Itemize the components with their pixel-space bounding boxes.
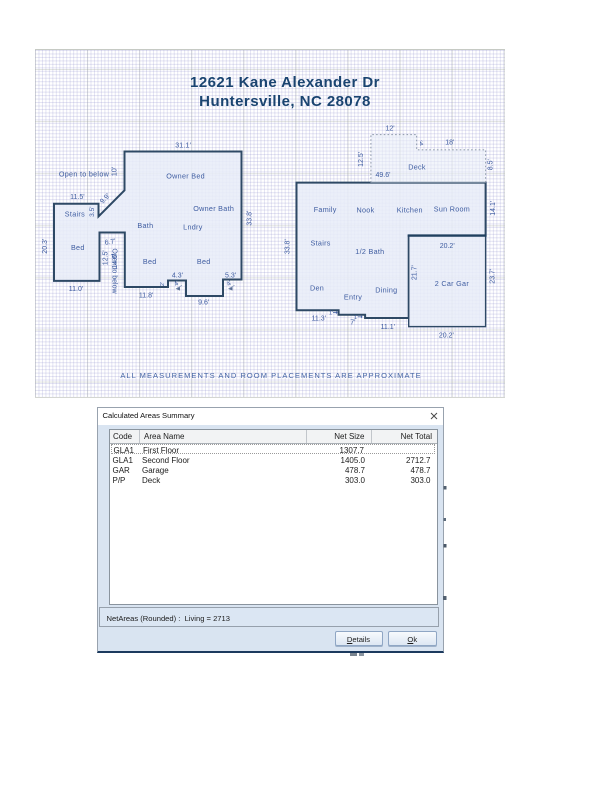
svg-text:49.6': 49.6' bbox=[376, 172, 391, 179]
svg-text:33.8': 33.8' bbox=[285, 239, 292, 254]
svg-text:Owner Bed: Owner Bed bbox=[166, 172, 205, 181]
svg-text:11.5': 11.5' bbox=[70, 194, 84, 201]
svg-text:14.5': 14.5' bbox=[112, 254, 119, 269]
svg-text:33.8': 33.8' bbox=[247, 211, 254, 226]
svg-text:20.3': 20.3' bbox=[42, 239, 49, 254]
svg-text:20.2': 20.2' bbox=[440, 243, 455, 250]
svg-text:11.8': 11.8' bbox=[139, 292, 153, 299]
svg-text:31.1': 31.1' bbox=[175, 143, 191, 150]
svg-text:Den: Den bbox=[310, 284, 324, 293]
svg-text:Stairs: Stairs bbox=[65, 209, 85, 218]
svg-text:Owner Bath: Owner Bath bbox=[193, 204, 234, 213]
svg-text:5.3': 5.3' bbox=[225, 273, 236, 280]
svg-text:11.0': 11.0' bbox=[69, 286, 83, 293]
svg-text:4.3': 4.3' bbox=[172, 273, 183, 280]
svg-text:20.2': 20.2' bbox=[439, 333, 454, 340]
svg-text:2 Car Gar: 2 Car Gar bbox=[435, 279, 470, 288]
svg-text:4': 4' bbox=[418, 140, 426, 148]
svg-text:11.3': 11.3' bbox=[312, 315, 326, 322]
svg-text:Bed: Bed bbox=[71, 243, 85, 252]
svg-text:12.5': 12.5' bbox=[358, 152, 365, 167]
svg-text:Bed: Bed bbox=[197, 257, 211, 266]
svg-text:Entry: Entry bbox=[344, 293, 362, 302]
svg-text:14.1': 14.1' bbox=[490, 201, 497, 216]
svg-text:Family: Family bbox=[314, 205, 337, 214]
svg-text:8.5': 8.5' bbox=[487, 159, 494, 170]
svg-text:3.5': 3.5' bbox=[89, 207, 96, 217]
svg-text:11.1': 11.1' bbox=[381, 324, 395, 331]
svg-text:1': 1' bbox=[354, 315, 358, 321]
svg-text:Bath: Bath bbox=[137, 221, 153, 230]
svg-text:Kitchen: Kitchen bbox=[397, 206, 423, 215]
svg-text:Nook: Nook bbox=[357, 206, 375, 215]
svg-text:Deck: Deck bbox=[408, 162, 426, 171]
svg-text:12': 12' bbox=[385, 126, 394, 133]
svg-text:21.7': 21.7' bbox=[412, 265, 419, 280]
svg-text:1/2 Bath: 1/2 Bath bbox=[355, 247, 384, 256]
svg-text:Stairs: Stairs bbox=[311, 238, 331, 247]
svg-text:Dining: Dining bbox=[375, 285, 397, 294]
svg-text:2': 2' bbox=[160, 282, 166, 286]
svg-text:Lndry: Lndry bbox=[183, 223, 203, 232]
svg-text:Sun Room: Sun Room bbox=[434, 205, 470, 214]
svg-text:10': 10' bbox=[112, 167, 119, 176]
svg-text:Bed: Bed bbox=[143, 257, 157, 266]
svg-text:9.6': 9.6' bbox=[198, 299, 209, 306]
svg-text:23.7': 23.7' bbox=[489, 269, 496, 284]
svg-text:12.5': 12.5' bbox=[102, 250, 109, 265]
svg-text:Open to below: Open to below bbox=[59, 169, 110, 178]
svg-text:18': 18' bbox=[445, 140, 454, 147]
svg-text:6.7': 6.7' bbox=[104, 238, 116, 246]
svg-text:1': 1' bbox=[329, 311, 333, 317]
